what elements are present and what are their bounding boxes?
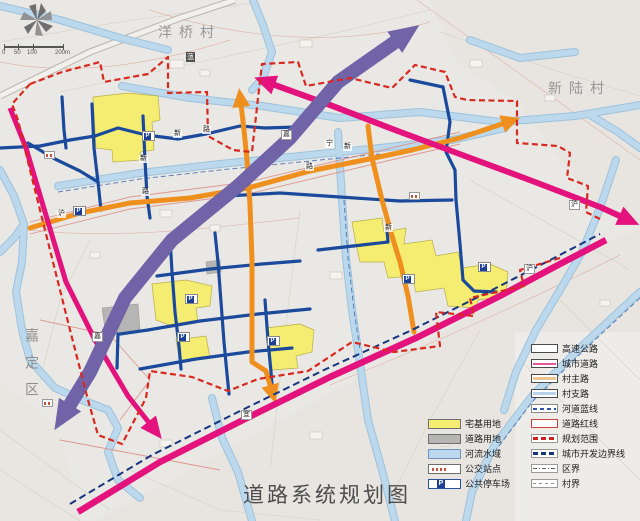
river-water-swatch — [428, 449, 461, 459]
legend-item-river-water: 河流水域 — [428, 447, 501, 460]
route-shield-label: 嘉 — [281, 130, 292, 140]
legend-label: 宅基用地 — [465, 417, 501, 430]
parking-letter: P — [179, 334, 186, 341]
district-boundary-swatch — [531, 464, 558, 473]
parking-icon: P — [73, 206, 86, 216]
village-branch-road-swatch — [531, 389, 558, 398]
legend-item-residential-land: 宅基用地 — [428, 417, 501, 430]
parking-letter: P — [269, 338, 276, 345]
legend-item-public-parking: P 公共停车场 — [428, 477, 510, 490]
legend-item-bus-stop: 公交站点 — [428, 462, 501, 475]
legend-label: 高速公路 — [562, 342, 598, 355]
city-road-swatch — [531, 359, 558, 368]
parking-icon: P — [267, 336, 280, 346]
parking-letter: P — [187, 296, 194, 303]
road-name-char: 路 — [202, 126, 211, 134]
legend-item-district-boundary: 区界 — [531, 462, 580, 475]
legend-item-expressway: 高速公路 — [531, 342, 598, 355]
legend-item-road-land: 道路用地 — [428, 432, 501, 445]
label-yangqiao-village: 洋桥村 — [158, 22, 221, 42]
river-blue-line-swatch — [531, 404, 558, 413]
legend-label: 道路红线 — [562, 417, 598, 430]
road-name-char: 新 — [139, 155, 148, 163]
road-system-planning-map: 0 50 100 200m 洋桥村 新陆村 嘉定区 蕰 新 路 新 路 沪 路 … — [0, 0, 640, 521]
legend-item-planning-scope: 规划范围 — [531, 432, 598, 445]
legend-item-city-road: 城市道路 — [531, 357, 598, 370]
legend-item-road-red-line: 道路红线 — [531, 417, 598, 430]
scale-bar-line — [4, 46, 64, 48]
label-xinlu-village: 新陆村 — [548, 78, 611, 98]
parking-icon: P — [142, 131, 155, 141]
parking-letter: P — [144, 133, 151, 140]
legend-label: 规划范围 — [562, 432, 598, 445]
planning-scope-swatch — [531, 434, 558, 443]
parking-letter: P — [480, 264, 487, 271]
legend-label: 区界 — [562, 462, 580, 475]
village-boundary-swatch — [531, 479, 558, 488]
legend-label: 公交站点 — [465, 462, 501, 475]
urban-dev-boundary-swatch — [531, 449, 558, 458]
legend-label: 村主路 — [562, 372, 589, 385]
bus-stop-icon — [44, 151, 55, 159]
bus-stop-icon — [409, 192, 420, 200]
bus-stop-icon — [42, 399, 53, 407]
legend-label: 河流水域 — [465, 447, 501, 460]
residential-land-swatch — [428, 419, 461, 429]
legend-label: 河道蓝线 — [562, 402, 598, 415]
road-name-char: 路 — [305, 163, 314, 171]
parking-letter: P — [75, 208, 82, 215]
label-jiading-district: 嘉定区 — [22, 328, 42, 409]
road-name-char: 新 — [173, 130, 182, 138]
road-name-char: 新 — [384, 224, 393, 232]
legend-item-village-boundary: 村界 — [531, 477, 580, 490]
legend-item-river-blue-line: 河道蓝线 — [531, 402, 598, 415]
road-red-line-swatch — [531, 419, 558, 428]
parking-letter: P — [437, 480, 445, 488]
legend-item-village-branch-road: 村支路 — [531, 387, 589, 400]
parking-letter: P — [404, 276, 411, 283]
road-name-char: 沪 — [57, 210, 66, 218]
road-name-char: 新 — [343, 143, 352, 151]
legend-label: 公共停车场 — [465, 477, 510, 490]
legend-item-village-main-road: 村主路 — [531, 372, 589, 385]
legend-label: 道路用地 — [465, 432, 501, 445]
bus-stop-swatch — [428, 464, 461, 474]
route-shield-label: 宜 — [241, 410, 252, 420]
label-river-name: 蕰 — [186, 52, 195, 62]
route-shield-label: 沪 — [524, 264, 535, 274]
scale-tick-200: 200m — [55, 50, 70, 56]
parking-icon: P — [402, 274, 415, 284]
legend-label: 城市开发边界线 — [562, 447, 625, 460]
scale-tick-100: 100 — [27, 50, 37, 56]
scale-tick-50: 50 — [14, 50, 21, 56]
page-title: 道路系统规划图 — [243, 479, 411, 509]
road-name-char: 路 — [141, 188, 150, 196]
parking-icon: P — [185, 294, 198, 304]
village-main-road-swatch — [531, 374, 558, 383]
scale-bar: 0 50 100 200m — [2, 42, 72, 58]
route-shield-label: 沪 — [569, 200, 580, 210]
expressway-swatch — [531, 344, 558, 353]
parking-icon: P — [177, 332, 190, 342]
road-name-char: 宁 — [325, 140, 334, 148]
road-land-swatch — [428, 434, 461, 444]
public-parking-swatch: P — [428, 479, 461, 489]
legend-label: 村界 — [562, 477, 580, 490]
scale-tick-0: 0 — [2, 50, 5, 56]
legend-label: 村支路 — [562, 387, 589, 400]
legend-label: 城市道路 — [562, 357, 598, 370]
parking-icon: P — [478, 262, 491, 272]
legend-item-urban-dev-boundary: 城市开发边界线 — [531, 447, 625, 460]
route-shield-label: 嘉 — [92, 332, 103, 342]
